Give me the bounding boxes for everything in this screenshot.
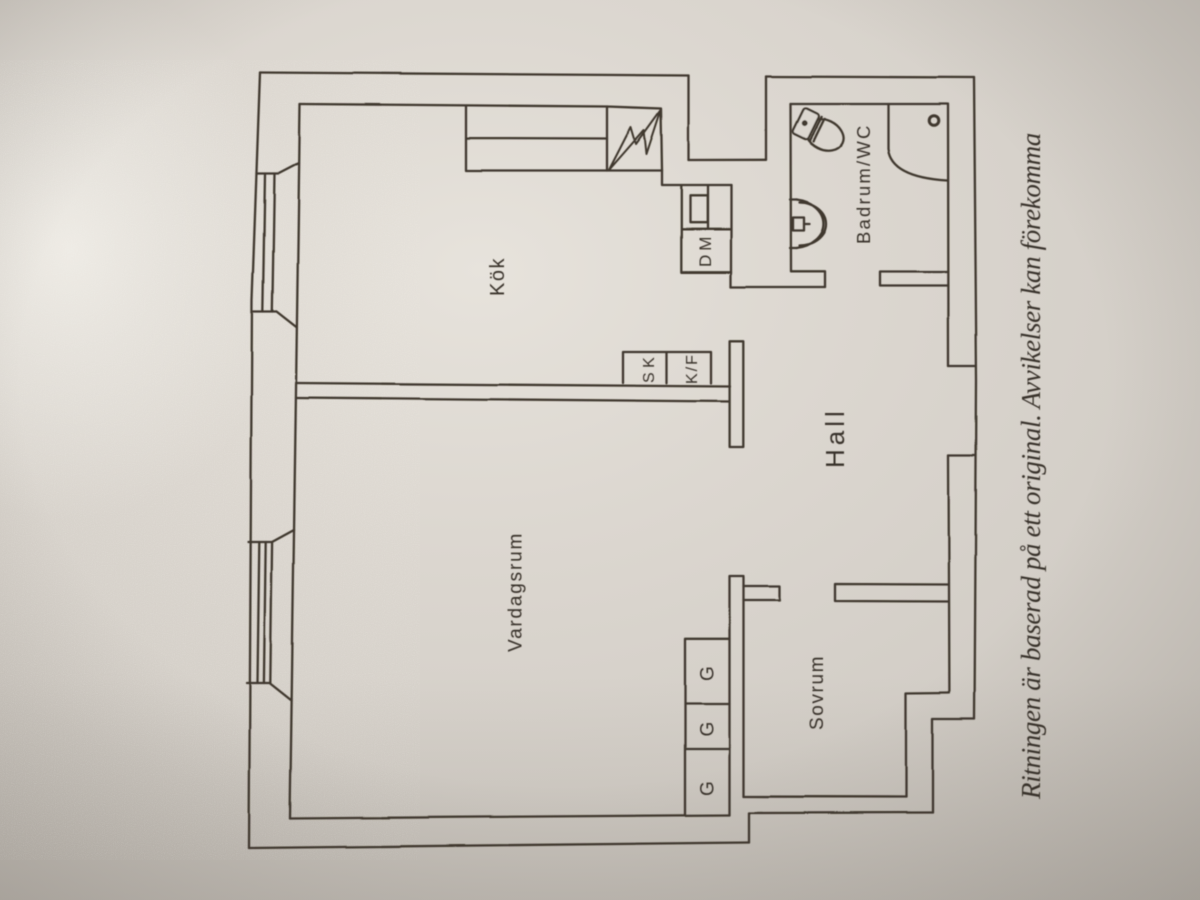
svg-text:Ritningen är baserad på ett or: Ritningen är baserad på ett original. Av… (1016, 133, 1046, 800)
svg-text:G: G (698, 781, 719, 796)
svg-text:Vardagsrum: Vardagsrum (506, 532, 527, 652)
svg-text:SK: SK (641, 353, 658, 383)
svg-text:G: G (698, 666, 719, 681)
svg-text:Kök: Kök (487, 257, 509, 296)
svg-text:Sovrum: Sovrum (807, 655, 828, 730)
svg-text:DM: DM (696, 233, 715, 267)
svg-text:G: G (698, 722, 719, 737)
svg-text:K/F: K/F (684, 353, 701, 384)
svg-text:Hall: Hall (820, 407, 850, 468)
svg-text:Badrum/WC: Badrum/WC (853, 123, 874, 244)
